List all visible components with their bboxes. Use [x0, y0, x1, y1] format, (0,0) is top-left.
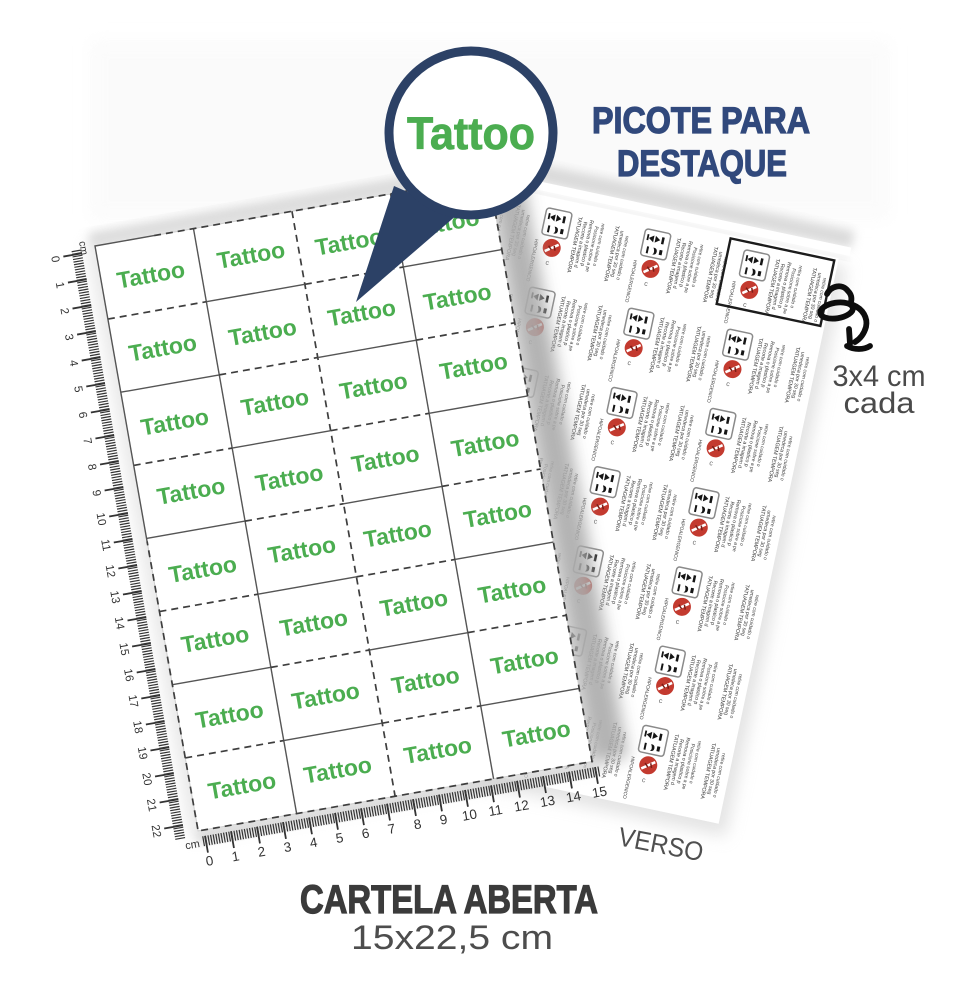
svg-text:13: 13: [107, 590, 121, 605]
svg-text:18: 18: [130, 720, 144, 735]
svg-text:DESTAQUE: DESTAQUE: [617, 142, 787, 184]
svg-text:15x22,5 cm: 15x22,5 cm: [351, 919, 553, 957]
svg-text:15: 15: [116, 642, 130, 657]
svg-text:13: 13: [539, 793, 556, 810]
svg-text:Tattoo: Tattoo: [407, 108, 535, 159]
svg-text:11: 11: [487, 802, 503, 819]
svg-text:10: 10: [94, 512, 108, 527]
svg-text:11: 11: [98, 538, 112, 552]
svg-text:22: 22: [149, 824, 163, 839]
svg-text:PICOTE PARA: PICOTE PARA: [592, 99, 810, 141]
svg-text:16: 16: [121, 668, 135, 683]
svg-text:12: 12: [513, 797, 530, 814]
svg-text:14: 14: [565, 788, 583, 805]
svg-text:cada: cada: [844, 387, 915, 420]
svg-text:cm: cm: [184, 838, 201, 852]
svg-text:19: 19: [135, 746, 149, 761]
svg-text:CARTELA ABERTA: CARTELA ABERTA: [300, 878, 598, 922]
svg-text:10: 10: [461, 806, 478, 823]
svg-text:12: 12: [103, 564, 117, 579]
svg-text:17: 17: [126, 694, 140, 709]
svg-text:15: 15: [591, 783, 608, 800]
svg-text:cm: cm: [76, 240, 90, 256]
svg-text:21: 21: [144, 798, 158, 813]
svg-text:20: 20: [139, 772, 153, 787]
